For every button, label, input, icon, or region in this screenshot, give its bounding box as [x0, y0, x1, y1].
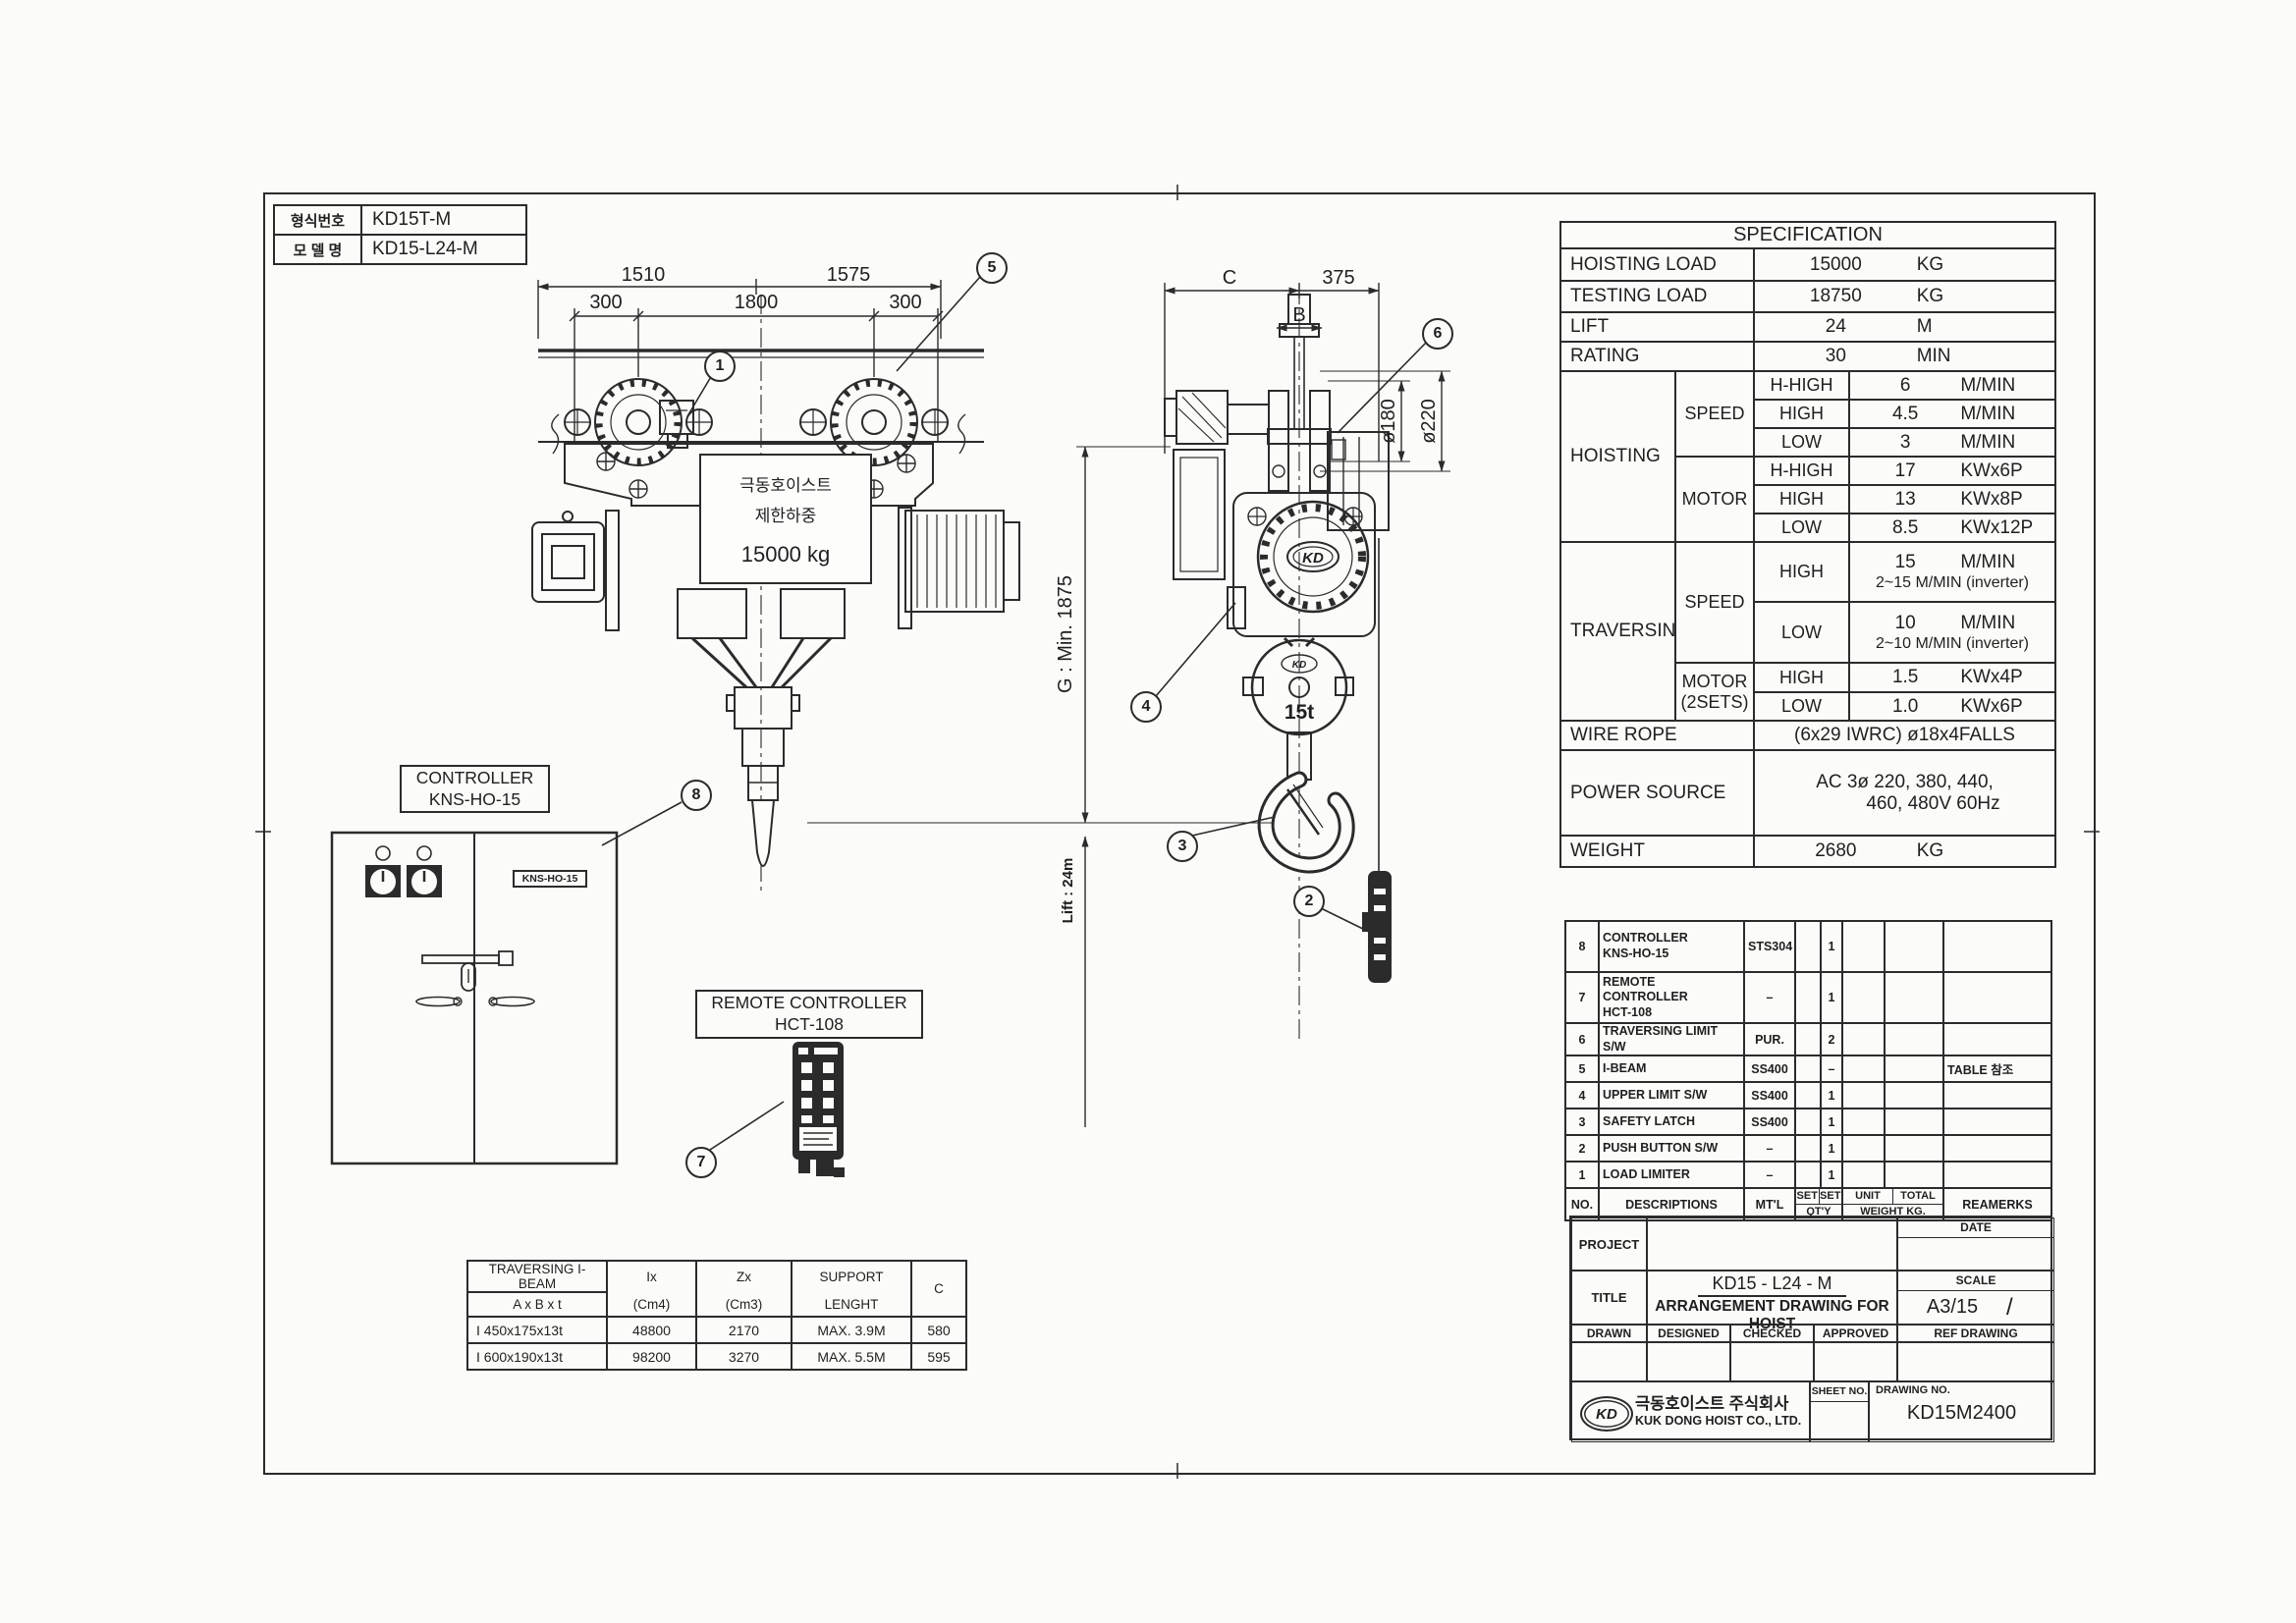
ibeam-table: TRAVERSING I-BEAM Ix Zx SUPPORT C A x B …	[466, 1260, 967, 1371]
spec-title: SPECIFICATION	[1560, 222, 2055, 248]
unit: KWx6P	[1960, 460, 2050, 482]
part-desc: UPPER LIMIT S/W	[1599, 1082, 1744, 1109]
value-cell: 13KWx8P	[1849, 485, 2055, 514]
ref-drawing-label: REF DRAWING	[1897, 1325, 2054, 1342]
spec-row-value: 15000KG	[1754, 248, 2055, 281]
date-cell: DATE	[1897, 1217, 2054, 1271]
spec-speed-label: SPEED	[1675, 542, 1754, 663]
part-desc: REMOTE CONTROLLERHCT-108	[1599, 972, 1744, 1023]
company-name-kr: 극동호이스트 주식회사	[1635, 1390, 1809, 1414]
dim-375: 375	[1322, 267, 1354, 289]
unit: M/MIN	[1960, 432, 2050, 454]
value: 4.5	[1850, 404, 1960, 425]
unit: M/MIN	[1960, 552, 2050, 574]
spec-motor-label: MOTOR	[1675, 457, 1754, 542]
remote-label-box: REMOTE CONTROLLER HCT-108	[695, 990, 923, 1039]
value: 2680	[1755, 840, 1917, 862]
dim-headroom: G : Min. 1875	[1055, 575, 1076, 693]
part-no: 1	[1565, 1162, 1599, 1188]
part-remarks	[1943, 1109, 2051, 1135]
parts-row: 5 I-BEAM SS400 – TABLE 참조	[1565, 1055, 2051, 1082]
rope-drum	[905, 511, 1019, 612]
controller-cabinet-drawing	[332, 802, 682, 1163]
leader-balloon-8	[602, 802, 682, 845]
scale-cell: SCALE A3/15 /	[1897, 1271, 2054, 1325]
part-desc: I-BEAM	[1599, 1055, 1744, 1082]
part-mtl: PUR.	[1744, 1023, 1795, 1055]
remote-label-line2: HCT-108	[697, 1014, 921, 1036]
value: 8.5	[1850, 517, 1960, 539]
spec-wire-rope-value: (6x29 IWRC) ø18x4FALLS	[1754, 721, 2055, 750]
nameplate-line1: 극동호이스트	[739, 471, 832, 496]
beam-size: I 600x190x13t	[467, 1343, 607, 1370]
value: 30	[1755, 346, 1917, 367]
balloon-1-load-limiter: 1	[704, 351, 736, 382]
title-line1: KD15 - L24 - M	[1698, 1271, 1845, 1297]
parts-row: 6 TRAVERSING LIMIT S/W PUR. 2	[1565, 1023, 2051, 1055]
part-desc: PUSH BUTTON S/W	[1599, 1135, 1744, 1162]
motor-label: MOTOR	[1678, 672, 1751, 692]
grade: LOW	[1754, 514, 1849, 542]
side-panel-box	[1174, 450, 1225, 579]
grade: LOW	[1754, 602, 1849, 663]
grade: HIGH	[1754, 542, 1849, 602]
unit: MIN	[1917, 346, 2049, 367]
part-mtl: SS400	[1744, 1109, 1795, 1135]
drawing-no-label: DRAWING NO.	[1870, 1382, 2053, 1396]
part-qty: 1	[1821, 1109, 1842, 1135]
spec-motor-2sets-label: MOTOR (2SETS)	[1675, 663, 1754, 721]
beam-break-right	[958, 414, 965, 454]
part-qty: 2	[1821, 1023, 1842, 1055]
dim-dia220: ø220	[1418, 399, 1440, 444]
trolley-section	[1165, 391, 1330, 491]
value-cell: 3M/MIN	[1849, 428, 2055, 457]
controller-label-box: CONTROLLER KNS-HO-15	[400, 765, 550, 813]
model-type-label: 형식번호	[274, 205, 361, 235]
parts-row: 4 UPPER LIMIT S/W SS400 1	[1565, 1082, 2051, 1109]
kd-company-logo: KD	[1580, 1396, 1633, 1432]
unit: KG	[1917, 286, 2049, 307]
part-qty: 1	[1821, 1162, 1842, 1188]
spec-row-label: RATING	[1560, 342, 1754, 371]
value: 6	[1850, 375, 1960, 397]
value-cell: 4.5M/MIN	[1849, 400, 2055, 428]
spec-power-value: AC 3ø 220, 380, 440, 460, 480V 60Hz	[1754, 750, 2055, 836]
hook-capacity-label: 15t	[1285, 701, 1314, 724]
dim-c: C	[1223, 267, 1236, 289]
value-cell: 8.5KWx12P	[1849, 514, 2055, 542]
pendant-cable	[1363, 538, 1391, 982]
value-cell: 17KWx6P	[1849, 457, 2055, 485]
part-desc: TRAVERSING LIMIT S/W	[1599, 1023, 1744, 1055]
part-mtl: –	[1744, 972, 1795, 1023]
parts-row: 8 CONTROLLERKNS-HO-15 STS304 1	[1565, 921, 2051, 972]
spec-hoisting-label: HOISTING	[1560, 371, 1675, 542]
balloon-6-traversing-limit: 6	[1422, 318, 1453, 350]
suspension-plate-left	[606, 511, 619, 630]
spec-traversing-label: TRAVERSING	[1560, 542, 1675, 721]
part-remarks	[1943, 1135, 2051, 1162]
parts-row: 7 REMOTE CONTROLLERHCT-108 – 1	[1565, 972, 2051, 1023]
spec-row-label: LIFT	[1560, 312, 1754, 342]
part-remarks: TABLE 참조	[1943, 1055, 2051, 1082]
motor-label2: (2SETS)	[1678, 692, 1751, 713]
model-type-value: KD15T-M	[361, 205, 526, 235]
part-qty: 1	[1821, 972, 1842, 1023]
dim-b: B	[1292, 304, 1305, 326]
parts-list-table: 8 CONTROLLERKNS-HO-15 STS304 1 7 REMOTE …	[1564, 920, 2052, 1221]
company-cell: KD 극동호이스트 주식회사 KUK DONG HOIST CO., LTD.	[1571, 1381, 1810, 1442]
remote-label-line1: REMOTE CONTROLLER	[697, 993, 921, 1014]
parts-row: 3 SAFETY LATCH SS400 1	[1565, 1109, 2051, 1135]
title-label: TITLE	[1571, 1271, 1647, 1325]
part-remarks	[1943, 972, 2051, 1023]
value: 18750	[1755, 286, 1917, 307]
drawn-label: DRAWN	[1571, 1325, 1647, 1342]
specification-table: SPECIFICATION HOISTING LOAD 15000KG TEST…	[1559, 221, 2056, 868]
balloon-5-ibeam: 5	[976, 252, 1008, 284]
value-cell: 6M/MIN	[1849, 371, 2055, 400]
beam-zx: 2170	[696, 1317, 792, 1343]
part-remarks	[1943, 1082, 2051, 1109]
part-no: 7	[1565, 972, 1599, 1023]
grade: LOW	[1754, 692, 1849, 721]
grade: HIGH	[1754, 663, 1849, 692]
part-no: 8	[1565, 921, 1599, 972]
drawing-sheet: 1510 1575 300 1800 300	[0, 0, 2296, 1623]
dim-1800: 1800	[735, 292, 779, 313]
inverter-range: 2~10 M/MIN (inverter)	[1850, 635, 2054, 653]
spec-weight-value: 2680KG	[1754, 836, 2055, 867]
sheet-no-label: SHEET NO.	[1811, 1382, 1868, 1402]
part-no: 4	[1565, 1082, 1599, 1109]
leader-balloon-4	[1156, 603, 1235, 696]
project-label: PROJECT	[1571, 1217, 1647, 1271]
balloon-3-safety-latch: 3	[1167, 831, 1198, 862]
value-cell: 1.0KWx6P	[1849, 692, 2055, 721]
header-lenght: LENGHT	[792, 1292, 911, 1317]
model-name-label: 모 델 명	[274, 235, 361, 264]
beam-header-row2: A x B x t (Cm4) (Cm3) LENGHT	[467, 1292, 966, 1317]
header-ix: Ix	[607, 1261, 696, 1292]
designed-value	[1647, 1342, 1730, 1381]
header-support: SUPPORT	[792, 1261, 911, 1292]
part-mtl: STS304	[1744, 921, 1795, 972]
unit: KWx8P	[1960, 489, 2050, 511]
title-value: KD15 - L24 - M ARRANGEMENT DRAWING FOR H…	[1647, 1271, 1897, 1325]
balloon-7-remote: 7	[685, 1147, 717, 1178]
unit: M/MIN	[1960, 613, 2050, 635]
part-desc: LOAD LIMITER	[1599, 1162, 1744, 1188]
beam-c: 595	[911, 1343, 966, 1370]
part-no: 2	[1565, 1135, 1599, 1162]
part-mtl: SS400	[1744, 1082, 1795, 1109]
part-qty: 1	[1821, 1135, 1842, 1162]
drawing-no-value: KD15M2400	[1870, 1402, 2053, 1425]
value: 1.0	[1850, 696, 1960, 718]
beam-row: I 450x175x13t 48800 2170 MAX. 3.9M 580	[467, 1317, 966, 1343]
title-block: PROJECT DATE TITLE KD15 - L24 - M ARRANG…	[1569, 1216, 2052, 1440]
kd-logo-small-text: KD	[1292, 660, 1306, 671]
parts-row: 2 PUSH BUTTON S/W – 1	[1565, 1135, 2051, 1162]
value-cell: 10M/MIN 2~10 M/MIN (inverter)	[1849, 602, 2055, 663]
approved-label: APPROVED	[1814, 1325, 1897, 1342]
scale-label: SCALE	[1898, 1271, 2053, 1291]
scale-extra: /	[2006, 1294, 2053, 1322]
part-mtl: SS400	[1744, 1055, 1795, 1082]
beam-ix: 98200	[607, 1343, 696, 1370]
value: 10	[1850, 613, 1960, 635]
parts-row: 1 LOAD LIMITER – 1	[1565, 1162, 2051, 1188]
controller-label-line1: CONTROLLER	[402, 768, 548, 789]
unit: KWx12P	[1960, 517, 2050, 539]
header-cm3: (Cm3)	[696, 1292, 792, 1317]
unit: KG	[1917, 840, 2049, 862]
model-name-value: KD15-L24-M	[361, 235, 526, 264]
value: 15000	[1755, 254, 1917, 276]
balloon-8-controller: 8	[681, 780, 712, 811]
value: 13	[1850, 489, 1960, 511]
part-no: 3	[1565, 1109, 1599, 1135]
beam-size: I 450x175x13t	[467, 1317, 607, 1343]
project-value	[1647, 1217, 1897, 1271]
part-remarks	[1943, 921, 2051, 972]
grade: LOW	[1754, 428, 1849, 457]
drawing-no-cell: DRAWING NO. KD15M2400	[1869, 1381, 2054, 1442]
remote-pendant-drawing	[710, 1043, 844, 1176]
table-row: 형식번호 KD15T-M	[274, 205, 526, 235]
power-line2: 460, 480V 60Hz	[1761, 793, 2049, 815]
unit: M/MIN	[1960, 375, 2050, 397]
part-desc: SAFETY LATCH	[1599, 1109, 1744, 1135]
grade: HIGH	[1754, 485, 1849, 514]
spec-row-value: 24M	[1754, 312, 2055, 342]
controller-label-line2: KNS-HO-15	[402, 789, 548, 811]
header-c: C	[911, 1261, 966, 1317]
part-no: 5	[1565, 1055, 1599, 1082]
checked-label: CHECKED	[1730, 1325, 1814, 1342]
dim-lift: Lift : 24m	[1060, 858, 1076, 924]
hoist-body-side	[1228, 493, 1375, 636]
model-number-table: 형식번호 KD15T-M 모 델 명 KD15-L24-M	[273, 204, 527, 265]
lower-block-and-hook	[1243, 638, 1353, 865]
header-traversing-ibeam: TRAVERSING I-BEAM	[467, 1261, 607, 1292]
beam-ix: 48800	[607, 1317, 696, 1343]
inverter-range: 2~15 M/MIN (inverter)	[1850, 574, 2054, 592]
dim-300-left: 300	[589, 292, 622, 313]
company-name-en: KUK DONG HOIST CO., LTD.	[1635, 1414, 1809, 1428]
beam-c: 580	[911, 1317, 966, 1343]
scale-value: A3/15	[1898, 1296, 2006, 1319]
dim-dia180: ø180	[1378, 399, 1399, 444]
value: 1.5	[1850, 667, 1960, 688]
dim-300-right: 300	[889, 292, 921, 313]
spec-row-value: 30MIN	[1754, 342, 2055, 371]
value-cell: 15M/MIN 2~15 M/MIN (inverter)	[1849, 542, 2055, 602]
spec-wire-rope-label: WIRE ROPE	[1560, 721, 1754, 750]
sheet-no-cell: SHEET NO.	[1810, 1381, 1869, 1442]
designed-label: DESIGNED	[1647, 1325, 1730, 1342]
ref-drawing-value	[1897, 1342, 2054, 1381]
grade: HIGH	[1754, 400, 1849, 428]
safety-latch	[1287, 789, 1319, 835]
unit: M/MIN	[1960, 404, 2050, 425]
grade: H-HIGH	[1754, 371, 1849, 400]
beam-row: I 600x190x13t 98200 3270 MAX. 5.5M 595	[467, 1343, 966, 1370]
value: 24	[1755, 316, 1917, 338]
spec-row-value: 18750KG	[1754, 281, 2055, 312]
hoist-motor	[532, 512, 604, 602]
part-no: 6	[1565, 1023, 1599, 1055]
beam-support: MAX. 5.5M	[792, 1343, 911, 1370]
balloon-2-push-button: 2	[1293, 886, 1325, 917]
beam-header-row1: TRAVERSING I-BEAM Ix Zx SUPPORT C	[467, 1261, 966, 1292]
dim-1575: 1575	[827, 264, 871, 286]
part-remarks	[1943, 1162, 2051, 1188]
beam-break-left	[552, 414, 559, 454]
balloon-4-upper-limit: 4	[1130, 691, 1162, 723]
value: 15	[1850, 552, 1960, 574]
capacity-nameplate: 극동호이스트 제한하중 15000 kg	[699, 454, 872, 584]
date-label: DATE	[1898, 1218, 2053, 1238]
table-row: 모 델 명 KD15-L24-M	[274, 235, 526, 264]
header-cm4: (Cm4)	[607, 1292, 696, 1317]
beam-support: MAX. 3.9M	[792, 1317, 911, 1343]
kd-logo-text: KD	[1302, 550, 1324, 567]
nameplate-capacity: 15000 kg	[741, 542, 831, 568]
header-axbxt: A x B x t	[467, 1292, 607, 1317]
nameplate-line2: 제한하중	[755, 502, 817, 526]
controller-nameplate: KNS-HO-15	[513, 870, 587, 888]
unit: KG	[1917, 254, 2049, 276]
leader-balloon-7	[710, 1102, 784, 1150]
part-mtl: –	[1744, 1162, 1795, 1188]
spec-row-label: HOISTING LOAD	[1560, 248, 1754, 281]
beam-zx: 3270	[696, 1343, 792, 1370]
spec-row-label: TESTING LOAD	[1560, 281, 1754, 312]
unit: M	[1917, 316, 2049, 338]
value-cell: 1.5KWx4P	[1849, 663, 2055, 692]
drawn-value	[1571, 1342, 1647, 1381]
spec-power-label: POWER SOURCE	[1560, 750, 1754, 836]
trolley-wheel-left	[565, 379, 712, 465]
part-qty: 1	[1821, 921, 1842, 972]
value: 17	[1850, 460, 1960, 482]
part-mtl: –	[1744, 1135, 1795, 1162]
part-desc: CONTROLLERKNS-HO-15	[1599, 921, 1744, 972]
trolley-wheel-right	[800, 379, 948, 465]
approved-value	[1814, 1342, 1897, 1381]
unit: KWx4P	[1960, 667, 2050, 688]
dim-1510: 1510	[622, 264, 666, 286]
spec-speed-label: SPEED	[1675, 371, 1754, 457]
part-remarks	[1943, 1023, 2051, 1055]
grade: H-HIGH	[1754, 457, 1849, 485]
unit: KWx6P	[1960, 696, 2050, 718]
value: 3	[1850, 432, 1960, 454]
spec-weight-label: WEIGHT	[1560, 836, 1754, 867]
part-qty: –	[1821, 1055, 1842, 1082]
checked-value	[1730, 1342, 1814, 1381]
part-qty: 1	[1821, 1082, 1842, 1109]
header-zx: Zx	[696, 1261, 792, 1292]
power-line1: AC 3ø 220, 380, 440,	[1761, 772, 2049, 793]
